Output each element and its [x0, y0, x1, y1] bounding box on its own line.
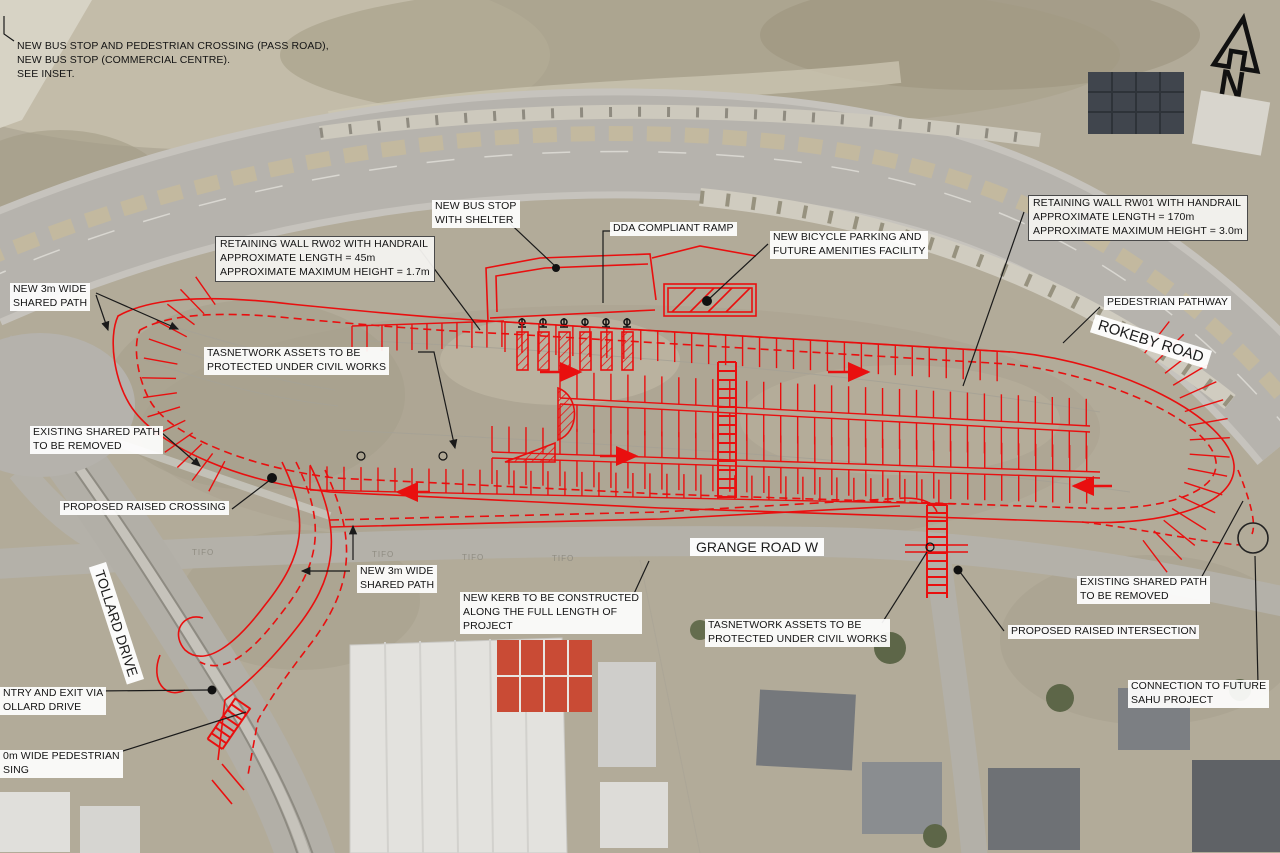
- annotation-retaining-wall-rw01: RETAINING WALL RW01 WITH HANDRAIL APPROX…: [1028, 195, 1248, 241]
- ground-mark-tifo: TIFO: [192, 548, 214, 557]
- annotation-proposed-raised-crossing: PROPOSED RAISED CROSSING: [60, 501, 229, 515]
- annotation-retaining-wall-rw02: RETAINING WALL RW02 WITH HANDRAIL APPROX…: [215, 236, 435, 282]
- annotation-dda-compliant-ramp: DDA COMPLIANT RAMP: [610, 222, 737, 236]
- annotation-tasnetwork-lower: TASNETWORK ASSETS TO BE PROTECTED UNDER …: [705, 619, 890, 647]
- annotation-new-3m-shared-path-top: NEW 3m WIDE SHARED PATH: [10, 283, 90, 311]
- annotation-new-bicycle-parking: NEW BICYCLE PARKING AND FUTURE AMENITIES…: [770, 231, 928, 259]
- annotation-new-3m-shared-path-lower: NEW 3m WIDE SHARED PATH: [357, 565, 437, 593]
- annotation-pedestrian-pathway: PEDESTRIAN PATHWAY: [1104, 296, 1231, 310]
- annotation-tasnetwork-upper: TASNETWORK ASSETS TO BE PROTECTED UNDER …: [204, 347, 389, 375]
- annotation-existing-path-left: EXISTING SHARED PATH TO BE REMOVED: [30, 426, 163, 454]
- annotation-pedestrian-crossing-cut: 0m WIDE PEDESTRIAN SING: [0, 750, 123, 778]
- annotation-connection-sahu: CONNECTION TO FUTURE SAHU PROJECT: [1128, 680, 1269, 708]
- annotation-inset-note: NEW BUS STOP AND PEDESTRIAN CROSSING (PA…: [14, 40, 332, 82]
- annotation-new-kerb: NEW KERB TO BE CONSTRUCTED ALONG THE FUL…: [460, 592, 642, 634]
- ground-mark-tifo: TIFO: [462, 553, 484, 562]
- ground-mark-tifo: TIFO: [552, 554, 574, 563]
- annotation-entry-exit-tollard: NTRY AND EXIT VIA OLLARD DRIVE: [0, 687, 106, 715]
- annotation-proposed-raised-intersection: PROPOSED RAISED INTERSECTION: [1008, 625, 1199, 639]
- annotation-existing-path-right: EXISTING SHARED PATH TO BE REMOVED: [1077, 576, 1210, 604]
- annotation-new-bus-stop-shelter: NEW BUS STOP WITH SHELTER: [432, 200, 520, 228]
- site-plan-canvas: N NEW BUS STOP AND PEDESTRIAN CROSSING (…: [0, 0, 1280, 853]
- road-label-grange: GRANGE ROAD W: [690, 538, 824, 556]
- ground-mark-tifo: TIFO: [372, 550, 394, 559]
- aerial-photo-and-linework: N: [0, 0, 1280, 853]
